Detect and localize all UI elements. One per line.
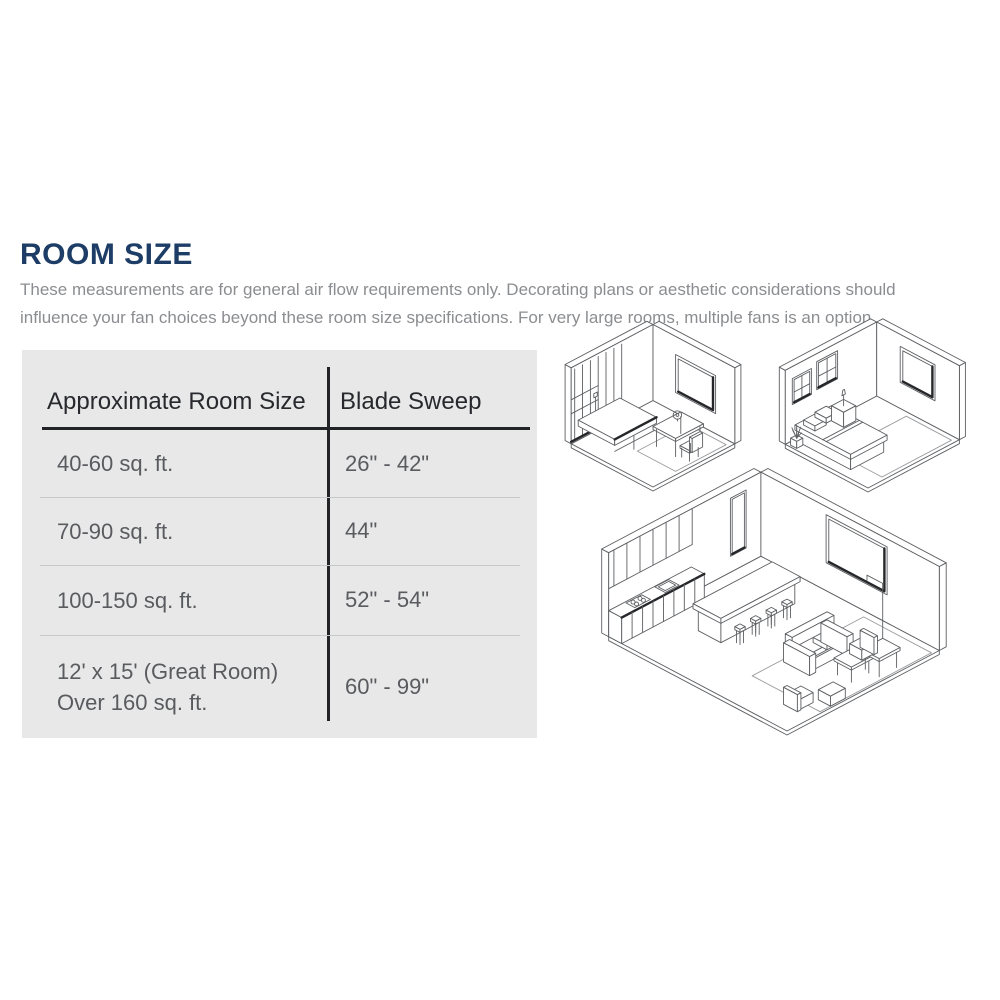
page-title: ROOM SIZE [20, 238, 193, 272]
table-row: 12' x 15' (Great Room)Over 160 sq. ft.60… [22, 635, 537, 738]
room-size-text: 100-150 sq. ft. [57, 585, 327, 616]
room-size-cell: 70-90 sq. ft. [22, 516, 327, 547]
great-room-illustration [602, 469, 947, 736]
small-room-illustration [565, 321, 741, 491]
room-size-cell: 40-60 sq. ft. [22, 448, 327, 479]
room-size-infographic: ROOM SIZE These measurements are for gen… [0, 0, 1000, 1000]
room-size-text: 12' x 15' (Great Room) [57, 656, 327, 687]
room-size-text: 70-90 sq. ft. [57, 516, 327, 547]
table-header-room-size: Approximate Room Size [47, 388, 306, 416]
blade-sweep-cell: 26" - 42" [327, 451, 429, 477]
blade-sweep-cell: 52" - 54" [327, 587, 429, 613]
bedroom-illustration [779, 319, 965, 492]
table-header-blade-sweep: Blade Sweep [340, 388, 481, 416]
table-row: 40-60 sq. ft.26" - 42" [22, 430, 537, 497]
room-size-text-line2: Over 160 sq. ft. [57, 687, 327, 718]
room-size-cell: 100-150 sq. ft. [22, 585, 327, 616]
blade-sweep-cell: 60" - 99" [327, 674, 429, 700]
blade-sweep-cell: 44" [327, 518, 377, 544]
room-size-text: 40-60 sq. ft. [57, 448, 327, 479]
room-size-cell: 12' x 15' (Great Room)Over 160 sq. ft. [22, 656, 327, 718]
table-row: 70-90 sq. ft.44" [22, 497, 537, 565]
room-size-table: Approximate Room Size Blade Sweep 40-60 … [22, 350, 537, 738]
room-illustrations [550, 318, 985, 778]
table-row: 100-150 sq. ft.52" - 54" [22, 565, 537, 635]
